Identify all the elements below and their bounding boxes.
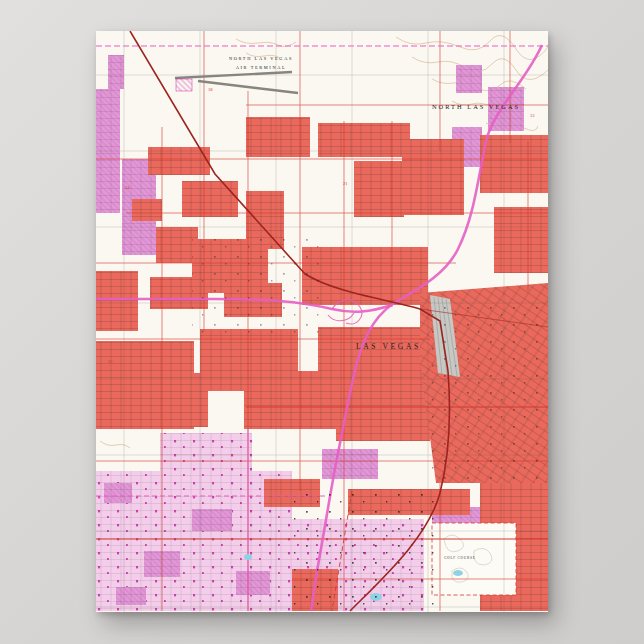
airport-label-line2: AIR TERMINAL	[236, 65, 286, 70]
section-number: 25	[108, 359, 113, 364]
topo-map-svg: NORTH LAS VEGAS AIR TERMINAL NORTH LAS V…	[96, 31, 548, 612]
airport-label-line1: NORTH LAS VEGAS	[229, 56, 293, 61]
map-poster: NORTH LAS VEGAS AIR TERMINAL NORTH LAS V…	[96, 31, 548, 612]
north-las-vegas-label: NORTH LAS VEGAS	[432, 103, 520, 110]
section-number: 24	[125, 185, 130, 190]
section-number: 18	[208, 87, 213, 92]
section-number: 13	[530, 113, 535, 118]
airport-apron	[176, 79, 192, 91]
las-vegas-label: LAS VEGAS	[356, 342, 421, 351]
section-number: 21	[343, 181, 348, 186]
golf-course-label: GOLF COURSE	[444, 556, 476, 560]
